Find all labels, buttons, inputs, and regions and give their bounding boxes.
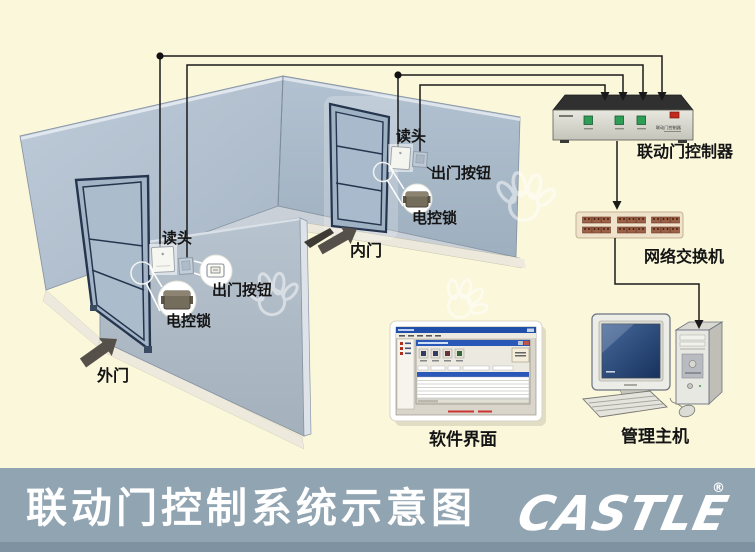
outer-door-label: 外门: [96, 366, 129, 385]
controller-brand-mark: [559, 115, 573, 117]
controller-panel-print: 联动门控制器: [656, 124, 682, 131]
brand-logo-text: CASTLE: [513, 486, 734, 541]
controller-foot: [560, 140, 569, 143]
electric-lock-icon: [403, 192, 431, 207]
inner-exit-button-label: 出门按钮: [431, 164, 491, 182]
diagram-canvas: 联动门控制器: [0, 0, 755, 552]
controller-red-indicator: [670, 112, 679, 118]
toolbar-caption-mark: [444, 360, 451, 362]
app-window-buttons: [527, 329, 534, 333]
door-controller: 联动门控制器: [553, 95, 693, 143]
tower-power-button: [688, 384, 693, 389]
outer-lock-label: 电控锁: [166, 312, 211, 330]
controller-green-button: [584, 116, 593, 125]
filter-box: [463, 366, 489, 370]
filter-box: [448, 366, 460, 370]
outer-exit-button-plate: [178, 258, 193, 275]
outer-reader-device: [151, 246, 174, 272]
tree-panel: [397, 339, 414, 409]
software-window: [390, 321, 546, 426]
status-red-text-mark: [448, 411, 474, 413]
app-title-bar: [396, 327, 536, 333]
controller-green-button: [637, 116, 646, 125]
tree-item-icon: [400, 342, 403, 345]
tower-vent-button: [689, 361, 696, 368]
tree-item-icon: [400, 347, 403, 350]
h-scrollbar-thumb: [418, 400, 438, 402]
network-switch: [576, 212, 683, 238]
management-host: [583, 314, 722, 419]
outer-exit-button-label: 出门按钮: [212, 281, 272, 299]
schematic-page: 联动门控制器: [0, 0, 755, 552]
inner-dialog-title-mark: [418, 342, 448, 344]
outer-reader-label: 读头: [162, 229, 192, 247]
screen-text-mark: [606, 371, 615, 373]
footer-title: 联动门控制系统示意图: [26, 484, 476, 532]
menu-item-mark: [426, 335, 432, 337]
host-label: 管理主机: [621, 426, 689, 447]
controller-print-underline: [664, 131, 681, 132]
tower-drive-bay: [680, 342, 705, 346]
inner-exit-button-plate: [413, 152, 428, 168]
footer-band-dark: [0, 542, 755, 552]
action-button-mark: [515, 352, 526, 354]
app-title-text-mark: [398, 329, 414, 331]
toolbar-caption-mark: [432, 360, 439, 362]
status-red-text-mark: [478, 411, 492, 413]
tower-slot: [680, 348, 705, 350]
menu-item-mark: [435, 335, 441, 337]
inner-reader-device: [390, 146, 410, 169]
menu-item-mark: [408, 335, 414, 337]
toolbar-icon: [445, 351, 450, 356]
controller-caption-mark: [615, 128, 624, 129]
footer-bar: 联动门控制系统示意图 CASTLE ®: [0, 468, 755, 552]
toolbar-icon: [457, 351, 462, 356]
monitor-logo-mark: [624, 384, 637, 386]
inner-dialog-min-button: [518, 341, 523, 345]
tower-side: [709, 322, 722, 404]
controller-caption-mark: [584, 128, 593, 129]
inner-dialog-close-button: [524, 341, 529, 345]
registered-mark-icon: ®: [712, 481, 725, 496]
software-label: 软件界面: [429, 429, 497, 450]
filter-box: [493, 366, 513, 370]
action-button-mark: [515, 355, 526, 357]
controller-green-button: [615, 116, 624, 125]
controller-label: 联动门控制器: [637, 142, 734, 161]
tower-led: [699, 385, 701, 387]
tree-item-icon: [400, 352, 403, 355]
tree-item-mark: [405, 348, 411, 350]
table-header-row: [417, 372, 529, 377]
toolbar-caption-mark: [420, 360, 427, 362]
inner-door-label: 内门: [350, 241, 382, 260]
inner-reader-label: 读头: [396, 127, 426, 145]
brand-logo: CASTLE: [513, 486, 734, 541]
switch-label: 网络交换机: [644, 247, 724, 266]
toolbar-icon: [433, 351, 438, 356]
filter-box: [418, 366, 428, 370]
menu-item-mark: [399, 335, 405, 337]
tree-item-mark: [405, 353, 411, 355]
toolbar-caption-mark: [456, 360, 463, 362]
electric-lock-icon: [161, 291, 193, 309]
menu-item-mark: [417, 335, 423, 337]
inner-lock-label: 电控锁: [412, 209, 457, 227]
tree-item-mark: [405, 343, 411, 345]
toolbar-icon: [421, 351, 426, 356]
filter-box: [431, 366, 445, 370]
tower-drive-bay: [680, 335, 705, 340]
controller-caption-mark: [637, 128, 646, 129]
tower-vent-slot: [685, 372, 701, 374]
inner-door: [330, 104, 389, 232]
switch-body: [576, 212, 683, 238]
